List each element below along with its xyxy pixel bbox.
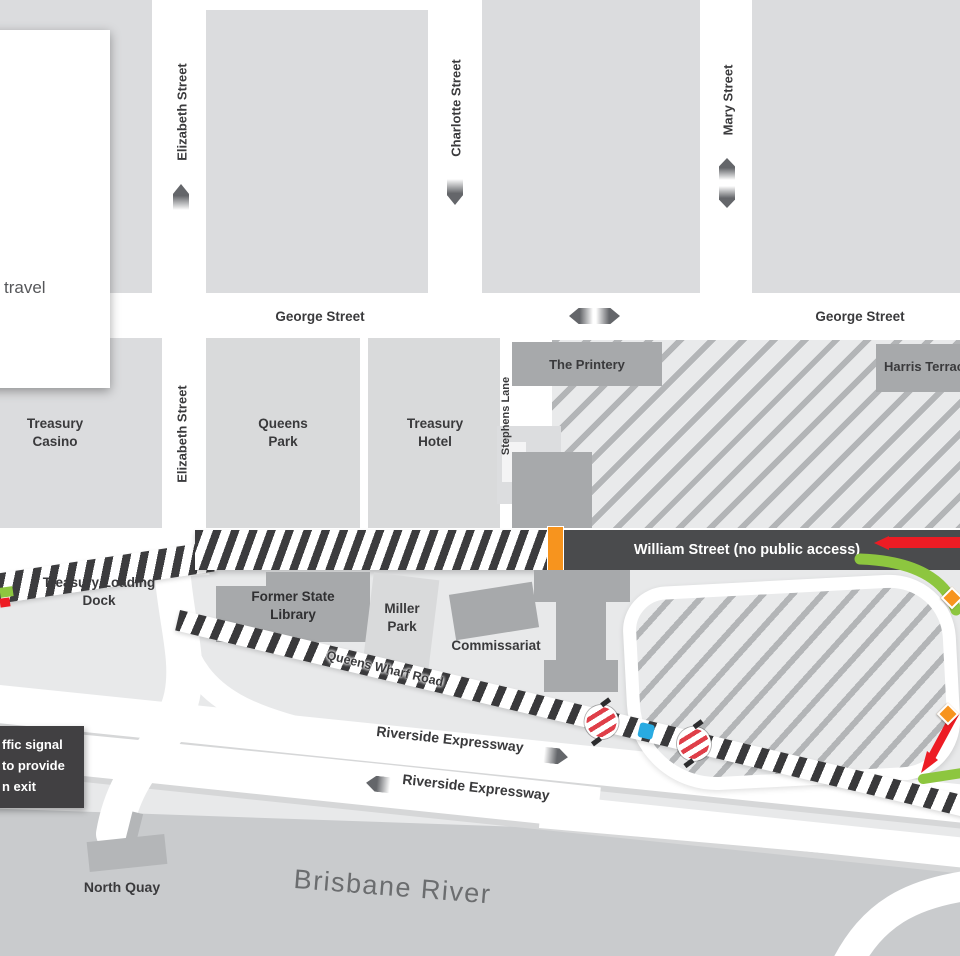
place-label-treasury-hotel: Treasury Hotel	[380, 415, 490, 451]
label-line: Miller	[362, 600, 442, 618]
green-route-curve	[860, 559, 956, 610]
place-label-commissariat: Commissariat	[436, 637, 556, 655]
label-line: Park	[228, 433, 338, 451]
label-line: Treasury	[380, 415, 490, 433]
green-route-bar	[923, 773, 960, 779]
callout-line: to provide	[2, 756, 65, 777]
brisbane-road-closure-map: William Street (no public access) Queens…	[0, 0, 960, 956]
label-line: Queens	[228, 415, 338, 433]
street-label-elizabeth-lower: Elizabeth Street	[175, 385, 190, 483]
place-label-former-state-library: Former State Library	[212, 588, 374, 624]
label-line: Former State	[212, 588, 374, 606]
legend-fragment: travel	[4, 278, 46, 298]
place-label-treasury-loading-dock: Treasury Loading Dock	[20, 574, 178, 610]
callout-line: n exit	[2, 777, 65, 798]
place-label-miller-park: Miller Park	[362, 600, 442, 636]
place-label-north-quay: North Quay	[62, 878, 182, 897]
label-line: Treasury Loading	[20, 574, 178, 592]
place-label-queens-park: Queens Park	[228, 415, 338, 451]
street-label-george-left: George Street	[250, 308, 390, 326]
route-overlay-layer	[0, 0, 960, 956]
label-line: Hotel	[380, 433, 490, 451]
label-line: Dock	[20, 592, 178, 610]
street-label-mary: Mary Street	[721, 65, 736, 136]
label-line: Library	[212, 606, 374, 624]
callout-line: ffic signal	[2, 735, 65, 756]
label-line: Casino	[0, 433, 110, 451]
street-label-george-right: George Street	[790, 308, 930, 326]
label-line: Park	[362, 618, 442, 636]
place-label-harris-terrace: Harris Terrace	[884, 358, 960, 376]
place-label-treasury-casino: Treasury Casino	[0, 415, 110, 451]
place-label-printery: The Printery	[522, 356, 652, 374]
label-line: Treasury	[0, 415, 110, 433]
legend-box: travel	[0, 30, 110, 388]
street-label-charlotte: Charlotte Street	[449, 59, 464, 157]
street-label-stephens-lane: Stephens Lane	[500, 377, 512, 455]
traffic-signal-callout: ffic signal to provide n exit	[0, 726, 84, 808]
street-label-elizabeth-top: Elizabeth Street	[175, 63, 190, 161]
